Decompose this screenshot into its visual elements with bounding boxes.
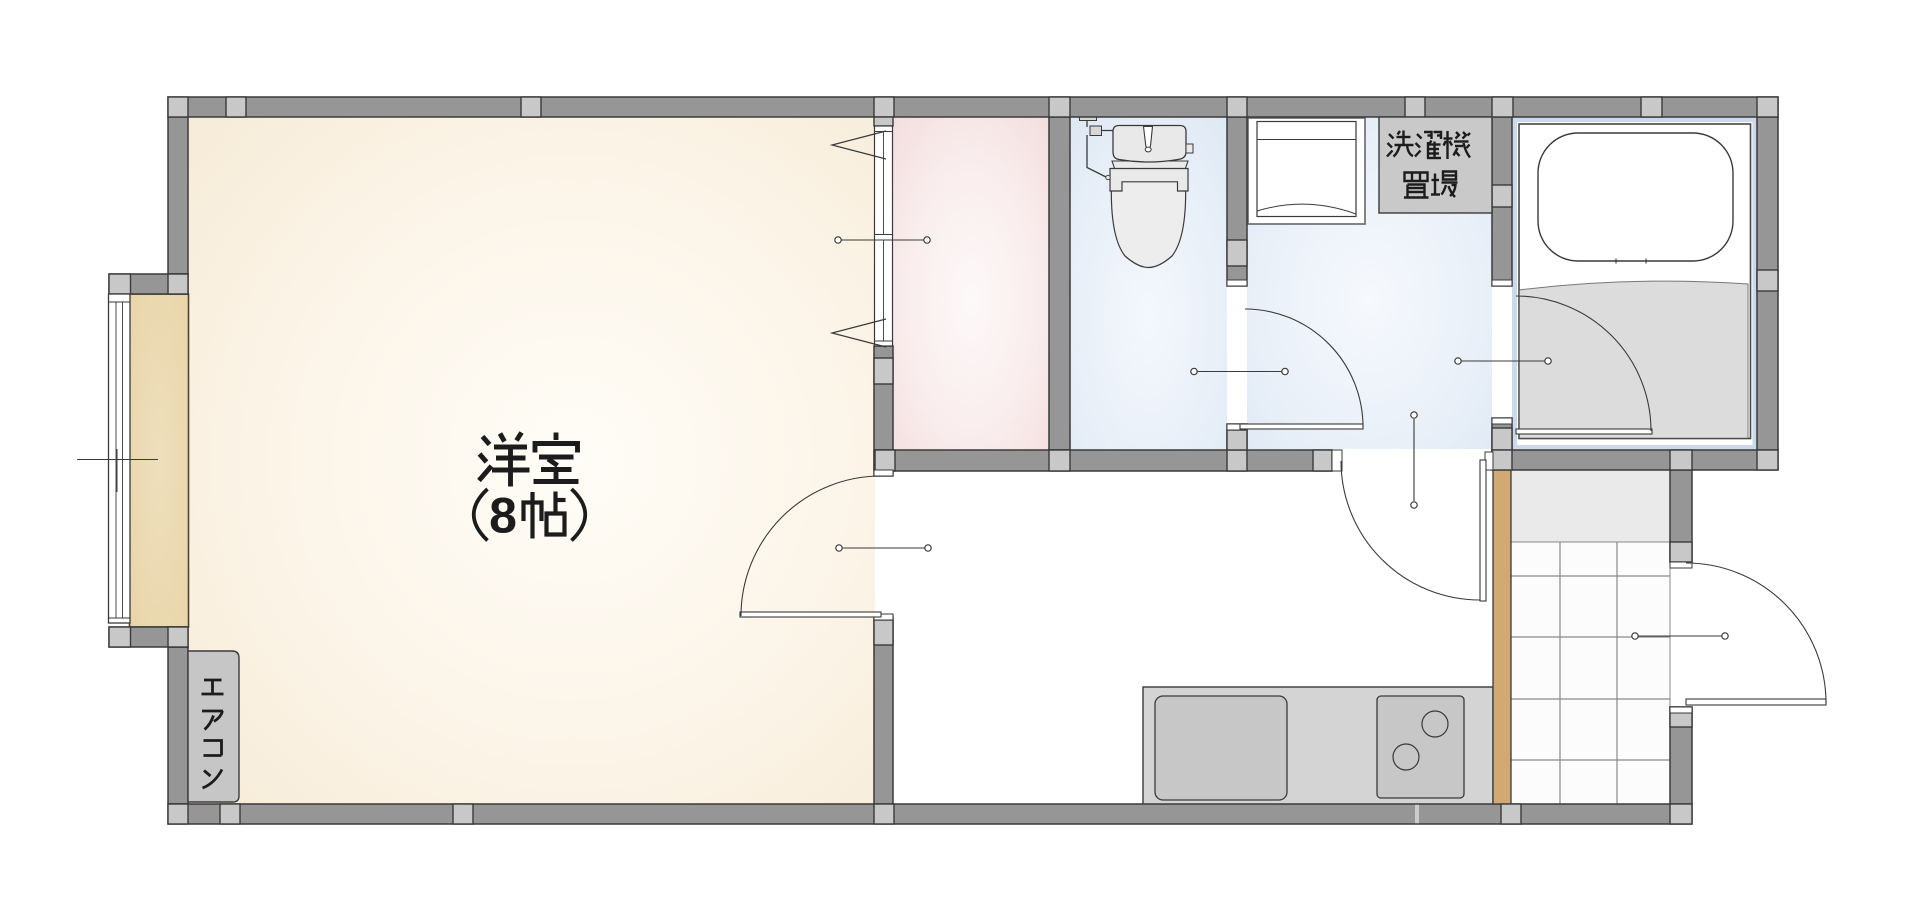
svg-text:8: 8 xyxy=(489,488,517,544)
